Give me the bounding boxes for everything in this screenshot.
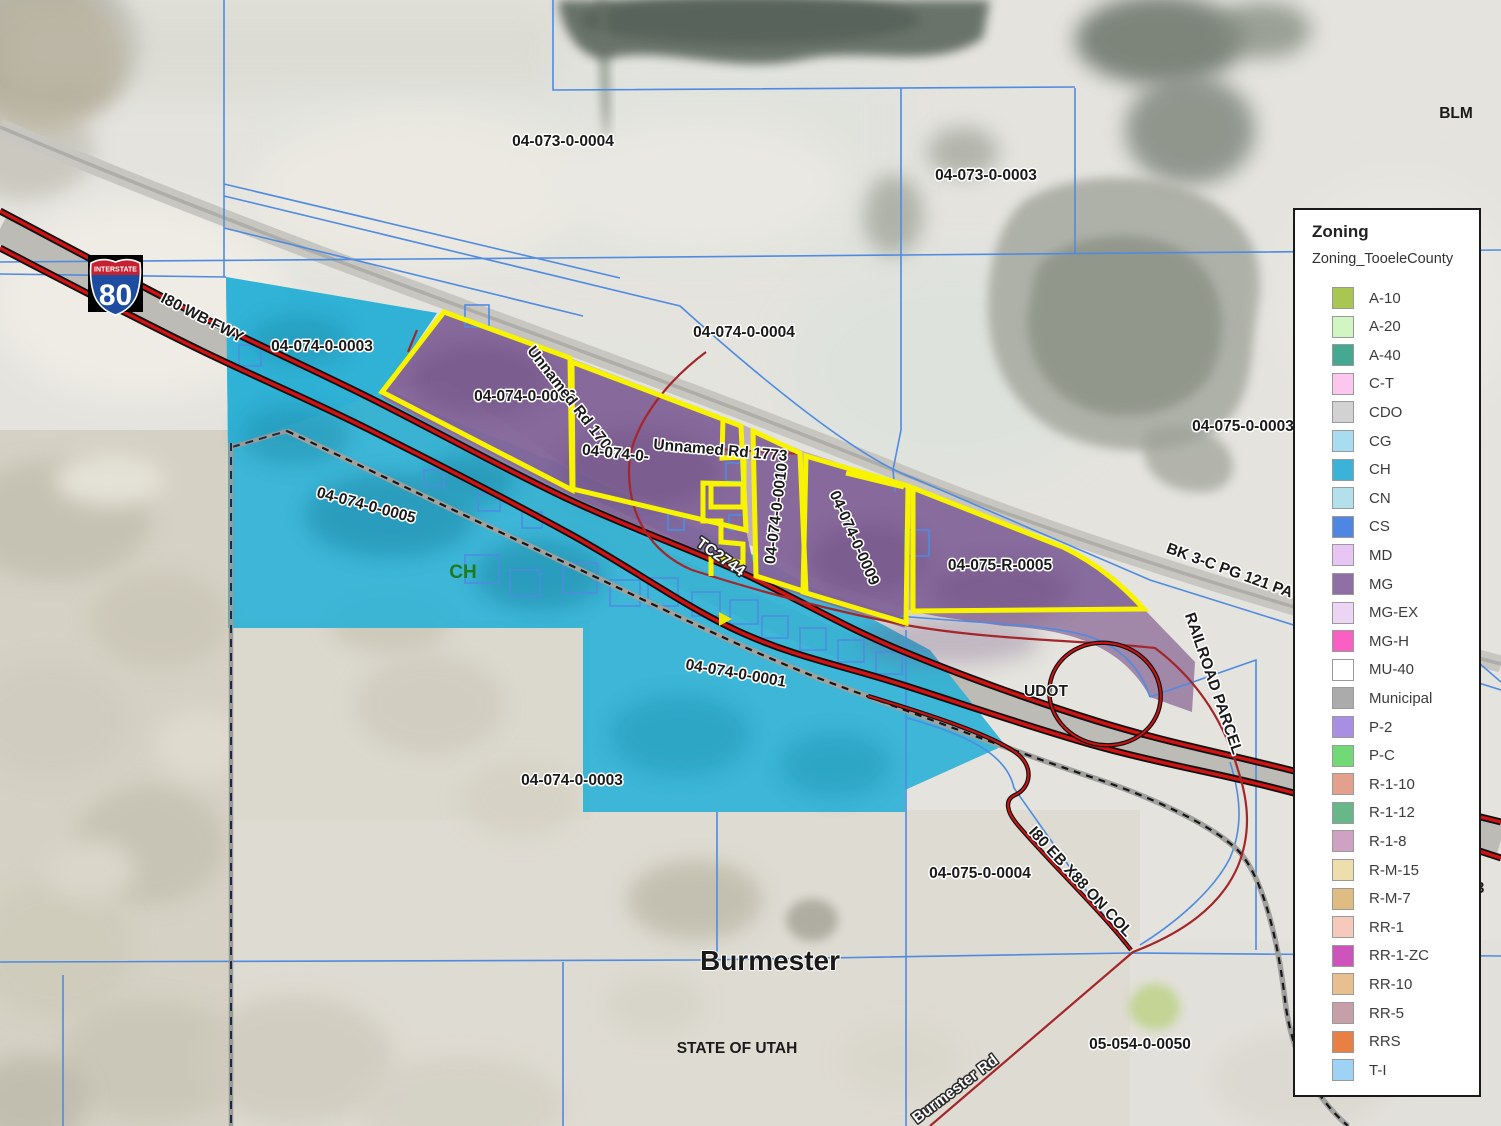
svg-text:BLM: BLM <box>1439 105 1473 122</box>
svg-text:Burmester: Burmester <box>700 945 840 976</box>
svg-text:04-073-0-0003: 04-073-0-0003 <box>935 167 1037 184</box>
svg-text:04-074-0-0004: 04-074-0-0004 <box>693 324 795 341</box>
svg-text:80: 80 <box>99 279 132 312</box>
svg-text:04-075-R-0005: 04-075-R-0005 <box>948 557 1053 574</box>
svg-text:04-074-0-0003: 04-074-0-0003 <box>271 338 373 355</box>
svg-text:04-073-0-0004: 04-073-0-0004 <box>512 133 614 150</box>
svg-text:STATE OF UTAH: STATE OF UTAH <box>677 1040 798 1057</box>
svg-text:CH: CH <box>449 562 476 583</box>
svg-text:04-074-0-0003: 04-074-0-0003 <box>521 772 623 789</box>
svg-text:05-054-0-0050: 05-054-0-0050 <box>1089 1036 1191 1053</box>
svg-text:UDOT: UDOT <box>1024 683 1068 700</box>
svg-text:INTERSTATE: INTERSTATE <box>94 267 137 274</box>
svg-text:04-075-0-0003: 04-075-0-0003 <box>1192 418 1294 435</box>
svg-text:04-075-0-0004: 04-075-0-0004 <box>929 865 1031 882</box>
